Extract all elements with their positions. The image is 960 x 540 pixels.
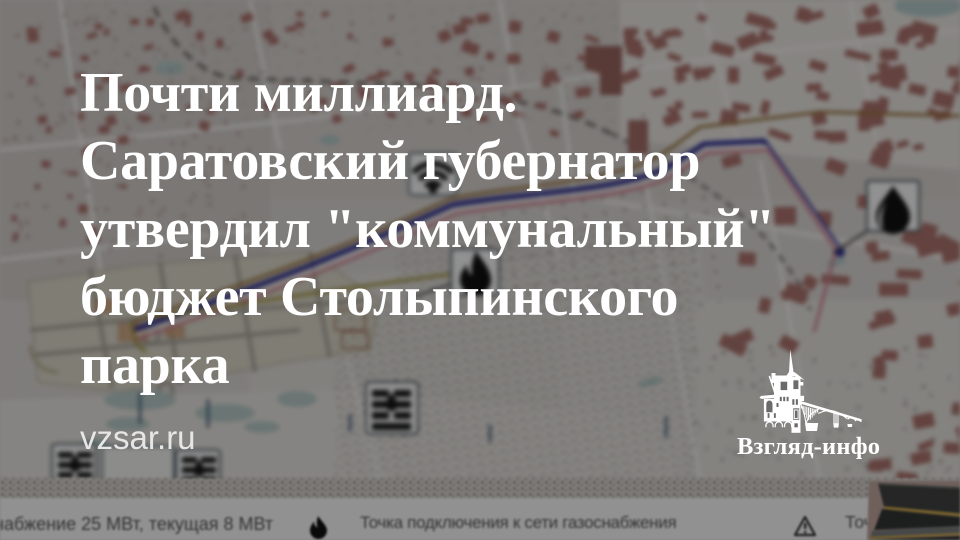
svg-text:Взгляд-инфо: Взгляд-инфо [737,433,880,460]
